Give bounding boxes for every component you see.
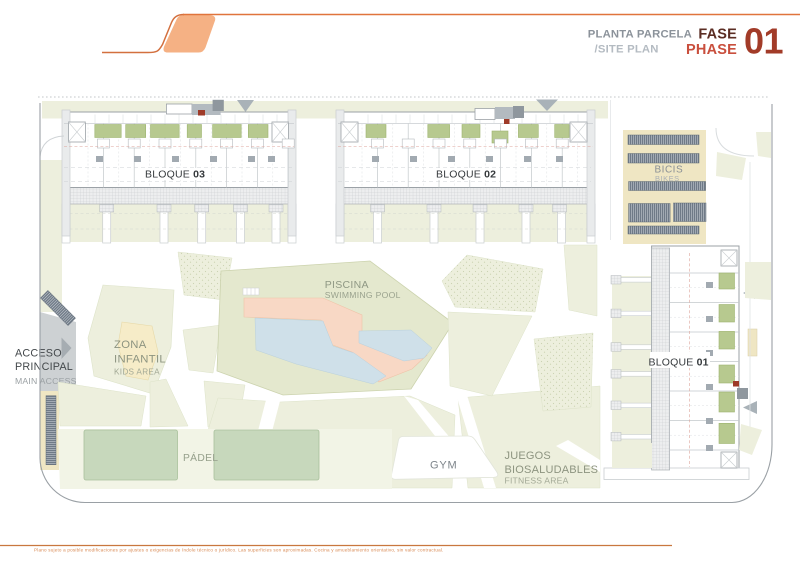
svg-text:FITNESS AREA: FITNESS AREA bbox=[505, 475, 569, 485]
svg-text:BLOQUE 03: BLOQUE 03 bbox=[145, 169, 205, 181]
svg-text:/SITE PLAN: /SITE PLAN bbox=[595, 44, 659, 56]
svg-text:ZONA: ZONA bbox=[114, 339, 147, 351]
svg-text:PRINCIPAL: PRINCIPAL bbox=[15, 361, 73, 373]
svg-text:PHASE: PHASE bbox=[686, 42, 737, 58]
svg-text:JUEGOS: JUEGOS bbox=[505, 450, 551, 462]
svg-text:FASE: FASE bbox=[698, 27, 737, 43]
svg-text:BLOQUE 02: BLOQUE 02 bbox=[436, 169, 496, 181]
svg-text:01: 01 bbox=[744, 21, 784, 62]
svg-text:GYM: GYM bbox=[430, 460, 457, 472]
svg-text:BLOQUE 01: BLOQUE 01 bbox=[649, 357, 709, 369]
svg-text:Plano sujeto a posible modific: Plano sujeto a posible modificaciones po… bbox=[34, 548, 444, 553]
svg-text:ACCESO: ACCESO bbox=[15, 347, 62, 359]
svg-text:KIDS AREA: KIDS AREA bbox=[114, 368, 160, 377]
svg-text:INFANTIL: INFANTIL bbox=[114, 354, 166, 366]
svg-text:PÁDEL: PÁDEL bbox=[183, 451, 218, 464]
svg-text:PISCINA: PISCINA bbox=[325, 279, 369, 291]
svg-text:SWIMMING POOL: SWIMMING POOL bbox=[325, 290, 401, 300]
svg-text:PLANTA PARCELA: PLANTA PARCELA bbox=[588, 29, 692, 41]
svg-text:BIOSALUDABLES: BIOSALUDABLES bbox=[505, 464, 599, 476]
svg-text:BIKES: BIKES bbox=[655, 174, 680, 183]
